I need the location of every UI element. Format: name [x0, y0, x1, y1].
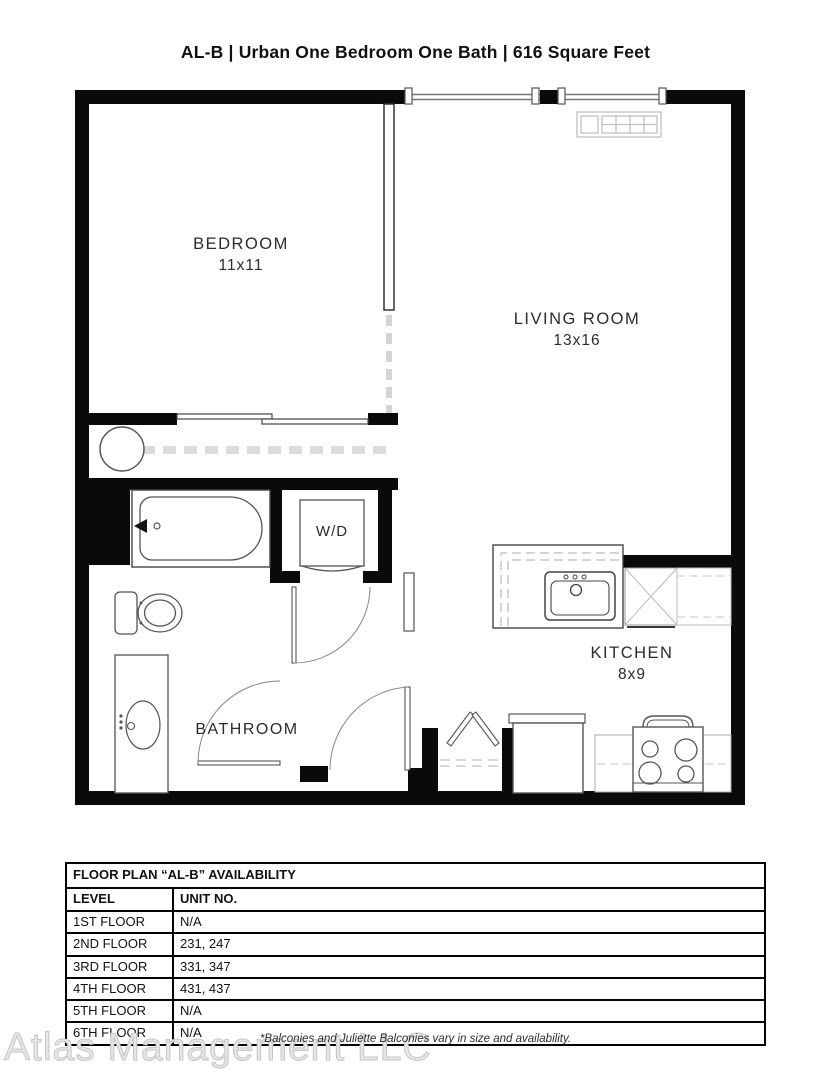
dishwasher-icon: [625, 568, 731, 627]
bedroom-dims: 11x11: [219, 257, 264, 274]
table-header-row: LEVEL UNIT NO.: [66, 888, 765, 911]
stove-icon: [633, 716, 703, 792]
hall-cased-opening: [404, 573, 414, 631]
wd-label: W/D: [316, 523, 348, 540]
entry-threshold: [440, 760, 500, 766]
units-cell: 231, 247: [173, 933, 765, 955]
toilet-icon: [115, 592, 182, 634]
column-header-level: LEVEL: [66, 888, 173, 911]
availability-table: FLOOR PLAN “AL-B” AVAILABILITY LEVEL UNI…: [65, 862, 766, 1046]
level-cell: 5TH FLOOR: [66, 1000, 173, 1022]
table-row: 4TH FLOOR 431, 437: [66, 978, 765, 1000]
level-cell: 4TH FLOOR: [66, 978, 173, 1000]
kitchen-sink-icon: [545, 572, 615, 620]
bathtub-icon: [132, 490, 270, 567]
level-cell: 3RD FLOOR: [66, 956, 173, 978]
entry-door-icon: [447, 712, 499, 746]
hall-door-swing: [330, 687, 410, 770]
page-root: AL-B | Urban One Bedroom One Bath | 616 …: [0, 0, 831, 1080]
table-title: FLOOR PLAN “AL-B” AVAILABILITY: [66, 863, 765, 888]
units-cell: N/A: [173, 911, 765, 933]
table-title-row: FLOOR PLAN “AL-B” AVAILABILITY: [66, 863, 765, 888]
kitchen-dims: 8x9: [618, 666, 646, 683]
table-row: 5TH FLOOR N/A: [66, 1000, 765, 1022]
table-row: 2ND FLOOR 231, 247: [66, 933, 765, 955]
refrigerator-icon: [509, 714, 585, 793]
living-room-label: LIVING ROOM: [514, 310, 641, 328]
water-heater-icon: [100, 427, 144, 471]
closet-sliding-doors: [177, 414, 368, 424]
baseboard-heater-icon: [577, 112, 661, 137]
level-cell: 1ST FLOOR: [66, 911, 173, 933]
bathroom-label: BATHROOM: [195, 721, 298, 738]
column-header-unit: UNIT NO.: [173, 888, 765, 911]
vanity-sink-icon: [115, 655, 168, 793]
kitchen-label: KITCHEN: [591, 644, 674, 662]
bedroom-label: BEDROOM: [193, 235, 289, 253]
units-cell: N/A: [173, 1000, 765, 1022]
balcony-footnote: *Balconies and Juliette Balconies vary i…: [0, 1033, 831, 1045]
level-cell: 2ND FLOOR: [66, 933, 173, 955]
table-row: 1ST FLOOR N/A: [66, 911, 765, 933]
units-cell: 431, 437: [173, 978, 765, 1000]
wd-door-swing: [292, 587, 370, 663]
living-room-window: [405, 88, 666, 104]
units-cell: 331, 347: [173, 956, 765, 978]
living-room-dims: 13x16: [553, 332, 600, 349]
bedroom-partition-wall: [384, 104, 394, 413]
table-row: 3RD FLOOR 331, 347: [66, 956, 765, 978]
